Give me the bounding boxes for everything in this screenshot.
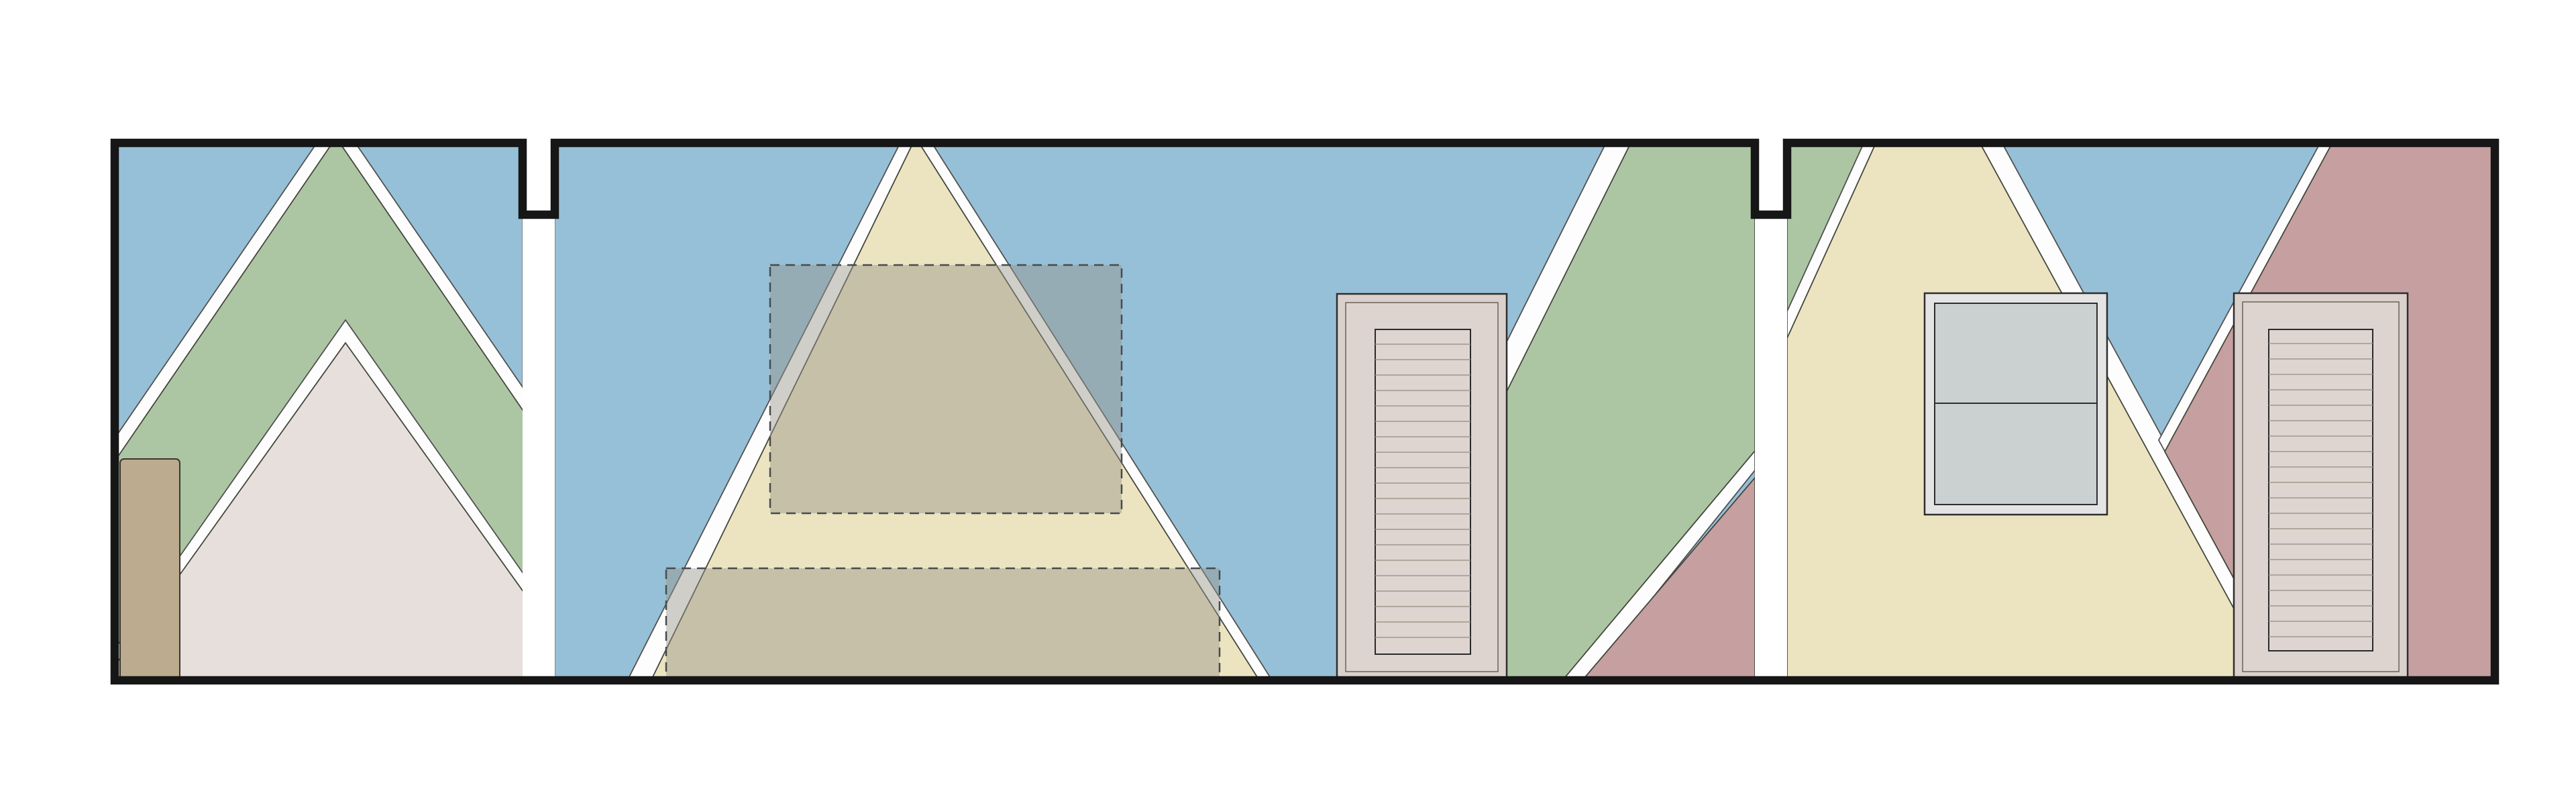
panel-left (64, 115, 615, 705)
panel-center (555, 138, 1755, 704)
overlay-rect-lower (666, 568, 1220, 684)
facade-elevation-svg (0, 0, 2576, 785)
louvered-door (1337, 294, 1507, 680)
overlay-rect-upper (770, 265, 1122, 513)
door-louver-panel (1375, 329, 1470, 654)
door-louver-panel (2269, 329, 2373, 651)
panel-right (1787, 138, 2495, 704)
elevation-drawing-canvas (0, 0, 2576, 785)
sash-window (1925, 293, 2107, 515)
tan-post (120, 459, 180, 680)
louvered-door (2234, 293, 2408, 680)
